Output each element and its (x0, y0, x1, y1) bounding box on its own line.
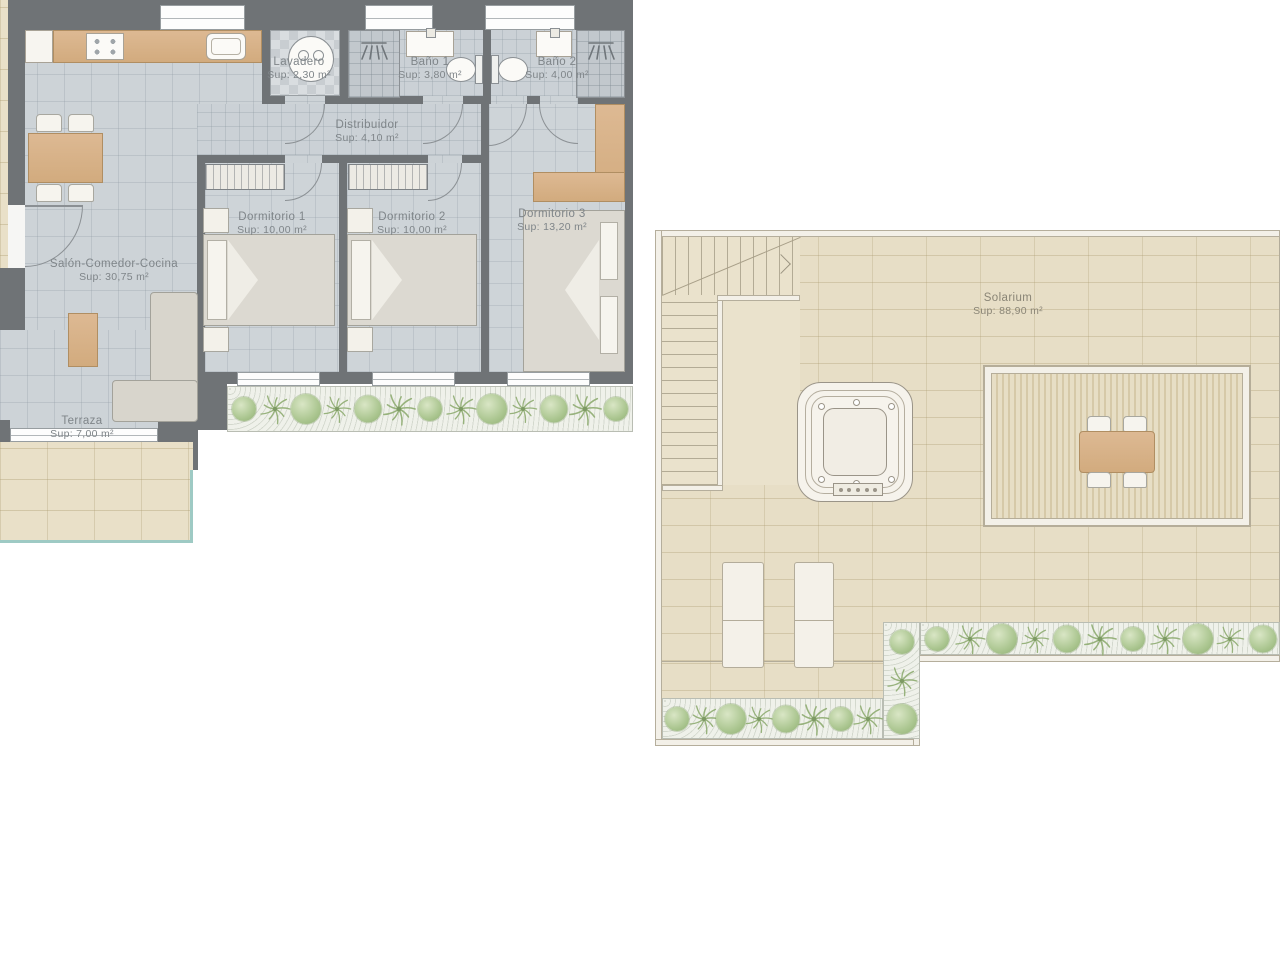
stair-steps (662, 295, 717, 485)
plant-icon (1249, 625, 1276, 652)
wall (481, 96, 489, 377)
wall (197, 372, 227, 430)
plant-icon (354, 396, 381, 423)
plant-icon (851, 701, 886, 736)
toilet (475, 55, 483, 84)
plant-icon (604, 397, 628, 421)
window (365, 5, 433, 30)
bush-icon (1249, 625, 1276, 652)
jacuzzi (797, 382, 913, 502)
dining-chair (68, 184, 94, 202)
planter (920, 622, 1280, 655)
wall (340, 30, 348, 104)
sun-lounger (794, 562, 834, 668)
dining-chair (68, 114, 94, 132)
window (372, 372, 455, 386)
planter (662, 698, 883, 739)
bush-icon (987, 624, 1017, 654)
plant-icon (1148, 621, 1183, 656)
wall (262, 96, 285, 104)
bathroom-sink (406, 31, 454, 57)
bush-icon (1054, 625, 1081, 652)
toilet (498, 57, 528, 82)
room-label-distribuidor: Distribuidor Sup: 4,10 m² (335, 119, 399, 144)
bush-icon (890, 630, 914, 654)
planter (227, 386, 633, 432)
wall (320, 372, 372, 384)
shower-icon (348, 30, 400, 98)
window (160, 5, 245, 30)
staircase (662, 237, 800, 485)
room-label-dorm2: Dormitorio 2 Sup: 10,00 m² (377, 211, 447, 236)
plant-icon (1054, 625, 1081, 652)
bush-icon (232, 397, 256, 421)
plant-icon (507, 393, 539, 425)
pillow (207, 240, 227, 320)
sun-lounger (722, 562, 764, 668)
room-label-solarium: Solarium Sup: 88,90 m² (973, 292, 1043, 317)
plant-icon (987, 624, 1017, 654)
coffee-table (68, 313, 98, 367)
plant-icon (795, 700, 833, 738)
plant-icon (291, 394, 321, 424)
parapet-wall (655, 230, 1280, 237)
outdoor-table (1079, 431, 1155, 473)
plant-icon (477, 394, 507, 424)
room-label-bano1: Baño 1 Sup: 3,80 m² (398, 56, 462, 81)
window (237, 372, 320, 386)
plant-icon (1183, 624, 1213, 654)
plant-icon (1214, 623, 1246, 655)
plant-icon (887, 704, 917, 734)
stair-parapet (662, 485, 723, 491)
plant-icon (743, 703, 775, 735)
room-label-dorm1: Dormitorio 1 Sup: 10,00 m² (237, 211, 307, 236)
kitchen-sink (206, 33, 246, 60)
jacuzzi-control-panel (833, 483, 883, 496)
pergola (983, 365, 1251, 527)
outdoor-chair (1087, 472, 1111, 488)
plant-icon (665, 707, 689, 731)
parapet-wall (655, 739, 920, 746)
wall (0, 268, 25, 330)
plant-icon (566, 390, 604, 428)
sofa (112, 380, 198, 422)
window (485, 5, 575, 30)
entrance-opening (8, 205, 25, 268)
outdoor-chair (1123, 472, 1147, 488)
wall (322, 155, 428, 163)
bush-icon (291, 394, 321, 424)
bush-icon (1183, 624, 1213, 654)
bush-icon (477, 394, 507, 424)
jet (818, 403, 825, 410)
plant-icon (321, 393, 353, 425)
plant-icon (925, 627, 949, 651)
bush-icon (829, 707, 853, 731)
bush-icon (354, 396, 381, 423)
plant-icon (232, 397, 256, 421)
bush-icon (541, 396, 568, 423)
room-label-bano2: Baño 2 Sup: 4,00 m² (525, 56, 589, 81)
bush-icon (418, 397, 442, 421)
plant-icon (1121, 627, 1145, 651)
hob (86, 33, 124, 60)
plant-icon (1019, 623, 1051, 655)
bush-icon (887, 704, 917, 734)
wall (8, 0, 25, 205)
pillow (600, 222, 618, 280)
planter (883, 622, 920, 739)
wall (339, 155, 347, 377)
wardrobe (205, 164, 285, 190)
dining-table (28, 133, 103, 183)
pillow (351, 240, 371, 320)
stair-parapet (717, 295, 800, 301)
wall (625, 0, 633, 384)
wardrobe (533, 172, 625, 202)
parapet-wall (655, 230, 662, 746)
plant-icon (380, 390, 418, 428)
outdoor-chair (1087, 416, 1111, 432)
jet (888, 403, 895, 410)
plant-icon (257, 392, 292, 427)
room-label-salon: Salón-Comedor-Cocina Sup: 30,75 m² (50, 258, 178, 283)
bush-icon (1121, 627, 1145, 651)
window (507, 372, 590, 386)
jacuzzi-basin (823, 408, 887, 476)
jet (818, 476, 825, 483)
stair-parapet (717, 295, 723, 491)
dining-chair (36, 114, 62, 132)
nightstand (347, 208, 373, 233)
wall (527, 96, 540, 104)
terrace-floor (0, 442, 193, 542)
bathroom-sink (536, 31, 572, 57)
floorplan-canvas: Lavadero Sup: 2,30 m² Baño 1 Sup: 3,80 m… (0, 0, 1280, 960)
plant-icon (541, 396, 568, 423)
jet (888, 476, 895, 483)
plant-icon (890, 630, 914, 654)
fridge (25, 30, 53, 63)
pillow (600, 296, 618, 354)
main-floor-plan: Lavadero Sup: 2,30 m² Baño 1 Sup: 3,80 m… (0, 0, 633, 546)
bush-icon (604, 397, 628, 421)
bush-icon (665, 707, 689, 731)
plant-icon (952, 621, 987, 656)
door-leaf (25, 205, 83, 207)
outdoor-chair (1123, 416, 1147, 432)
wall (590, 372, 633, 384)
nightstand (347, 327, 373, 352)
wall (462, 155, 481, 163)
plant-icon (1081, 620, 1119, 658)
glass-balustrade (190, 470, 193, 543)
room-label-lavadero: Lavadero Sup: 2,30 m² (267, 56, 331, 81)
plant-icon (884, 663, 919, 698)
solarium-plan: Solarium Sup: 88,90 m² (655, 230, 1280, 746)
wardrobe (348, 164, 428, 190)
wall (455, 372, 507, 384)
bush-icon (925, 627, 949, 651)
room-label-terraza: Terraza Sup: 7,00 m² (50, 415, 114, 440)
room-label-dorm3: Dormitorio 3 Sup: 13,20 m² (517, 208, 587, 233)
plant-icon (444, 392, 479, 427)
jet (853, 399, 860, 406)
glass-balustrade (0, 540, 193, 543)
nightstand (203, 208, 229, 233)
wall (197, 155, 285, 163)
dining-chair (36, 184, 62, 202)
plant-icon (829, 707, 853, 731)
wall (483, 30, 491, 104)
nightstand (203, 327, 229, 352)
plant-icon (418, 397, 442, 421)
